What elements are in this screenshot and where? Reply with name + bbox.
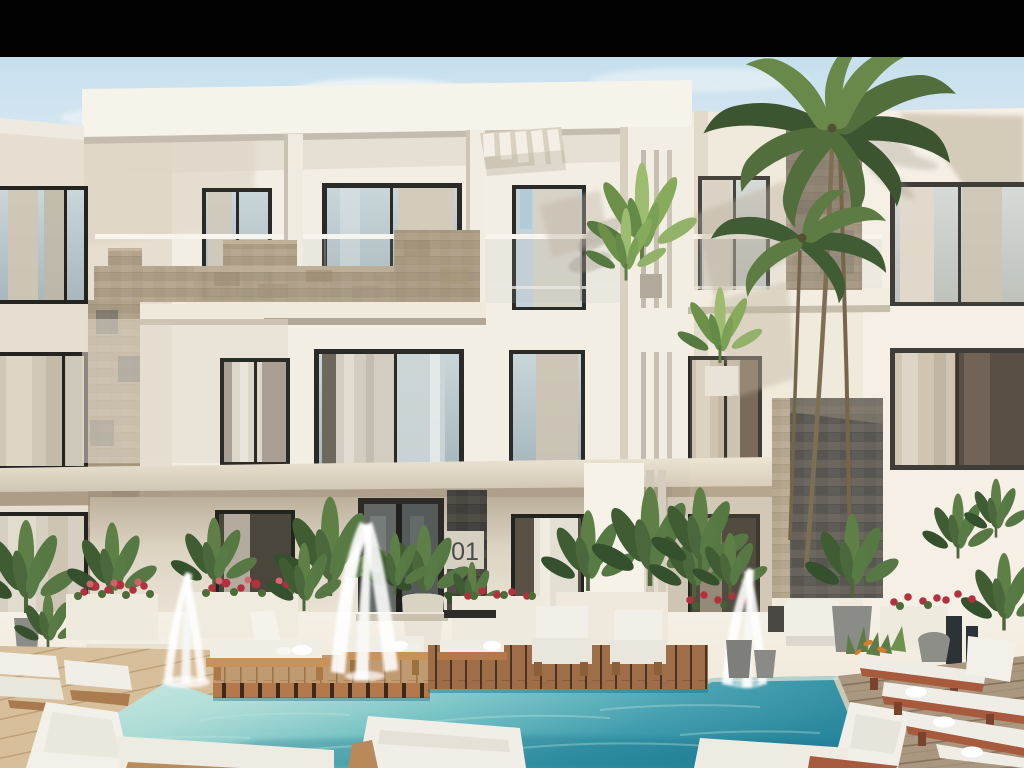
- svg-text:01: 01: [451, 538, 479, 566]
